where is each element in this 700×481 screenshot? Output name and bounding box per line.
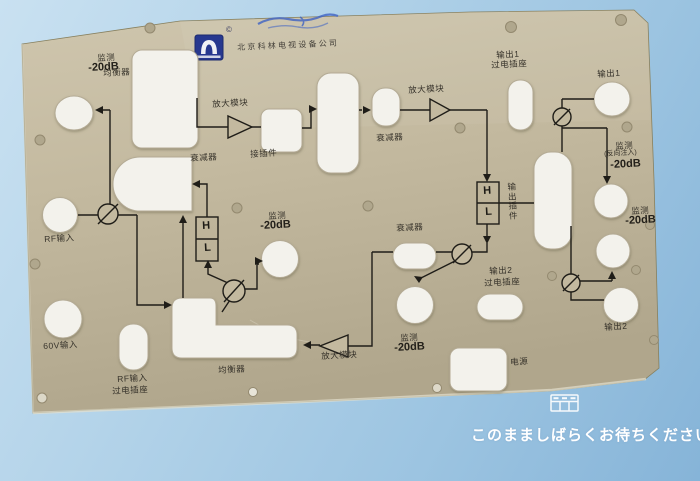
photo-viewer-background: 监测 -20dB 均衡器 放大模块 衰减器 接插件 衰减器 放大模块 输出1 过…: [0, 0, 700, 481]
label-output2-socket-b: 过电插座: [484, 277, 520, 287]
label-amp-module-2: 放大模块: [408, 84, 444, 94]
label-output1: 输出1: [597, 69, 621, 79]
table-grid-icon: [549, 392, 581, 414]
label-60v-input: 60V输入: [43, 340, 78, 350]
label-monitor-reverse-c: -20dB: [610, 158, 641, 171]
label-rf-input: RF输入: [44, 233, 75, 243]
label-l-right: L: [485, 207, 493, 218]
label-power: 电源: [510, 357, 528, 366]
copyright-mark: ©: [226, 25, 232, 34]
label-monitor-right-b: -20dB: [625, 214, 656, 227]
label-output2: 输出2: [604, 322, 628, 332]
label-output2-socket-a: 输出2: [489, 266, 513, 276]
label-h-center: H: [202, 221, 211, 232]
label-equalizer-top: 均衡器: [103, 68, 130, 78]
label-monitor-center-b: -20dB: [260, 219, 291, 232]
label-h-right: H: [483, 186, 492, 197]
label-attenuator-3: 衰减器: [396, 223, 423, 233]
wait-message: このまましばらくお待ちください。: [471, 424, 700, 445]
label-attenuator-1: 衰减器: [190, 153, 217, 163]
label-rf-socket-b: 过电插座: [112, 385, 148, 395]
label-equalizer-bottom: 均衡器: [218, 365, 245, 375]
label-l-center: L: [204, 243, 212, 254]
label-amp-module-3: 放大模块: [321, 350, 357, 360]
label-output1-socket-b: 过电插座: [491, 59, 527, 69]
label-amp-module-1: 放大模块: [212, 98, 248, 108]
label-attenuator-2: 衰减器: [376, 133, 403, 143]
label-rf-socket-a: RF输入: [117, 373, 148, 383]
label-monitor-bottom-b: -20dB: [394, 341, 425, 354]
label-connector: 接插件: [250, 149, 277, 159]
label-output-plugin: 输出插件: [506, 182, 519, 221]
company-logo: [195, 35, 223, 60]
